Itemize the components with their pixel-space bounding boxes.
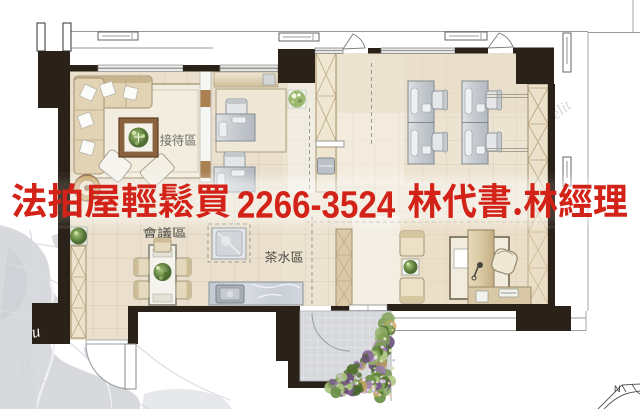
svg-text:N: N <box>614 384 621 394</box>
